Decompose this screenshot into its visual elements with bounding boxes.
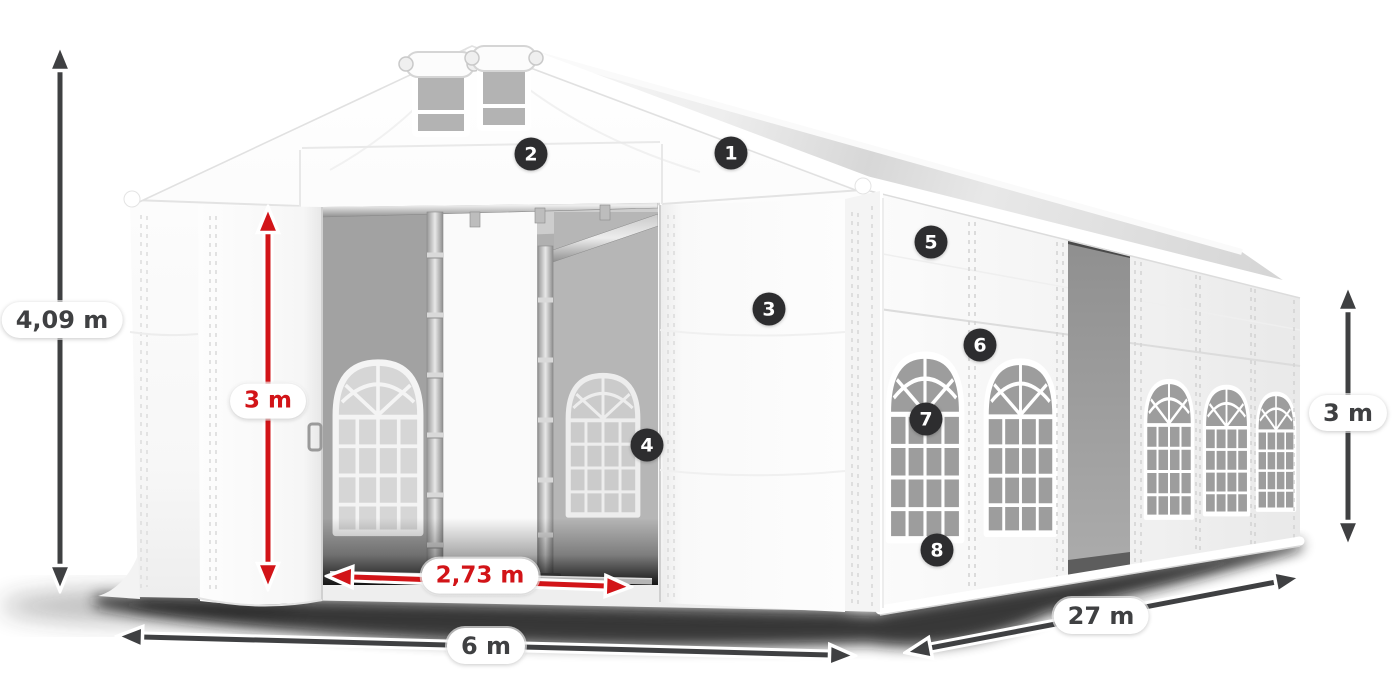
side-window-2 xyxy=(986,362,1055,534)
side-window-1 xyxy=(888,355,961,540)
callout-5[interactable]: 5 xyxy=(915,226,948,259)
callout-6[interactable]: 6 xyxy=(964,329,997,362)
label-side-height: 3 m xyxy=(1309,395,1387,431)
interior-window-right xyxy=(568,376,638,515)
side-open-door xyxy=(1068,232,1130,577)
interior-window-left xyxy=(336,363,421,533)
label-span-width: 6 m xyxy=(447,628,525,664)
callout-1[interactable]: 1 xyxy=(715,137,748,170)
label-length: 27 m xyxy=(1054,598,1149,634)
tent-dimension-diagram: 4,09 m 3 m 2,73 m 6 m 27 m 3 m 1 2 3 4 5… xyxy=(0,0,1400,700)
callout-2[interactable]: 2 xyxy=(515,138,548,171)
callout-8[interactable]: 8 xyxy=(921,534,954,567)
side-window-3 xyxy=(1146,382,1193,518)
tent-illustration xyxy=(0,0,1400,700)
entrance-right-door xyxy=(660,199,845,612)
callout-3[interactable]: 3 xyxy=(753,293,786,326)
label-total-height: 4,09 m xyxy=(2,302,123,338)
front-corner-strap xyxy=(845,191,880,612)
callout-7[interactable]: 7 xyxy=(910,403,943,436)
callout-4[interactable]: 4 xyxy=(631,429,664,462)
side-window-4 xyxy=(1204,387,1248,514)
side-window-5 xyxy=(1257,394,1295,510)
entrance-interior xyxy=(322,194,658,585)
label-entrance-height: 3 m xyxy=(230,384,306,419)
label-entrance-width: 2,73 m xyxy=(422,559,539,594)
